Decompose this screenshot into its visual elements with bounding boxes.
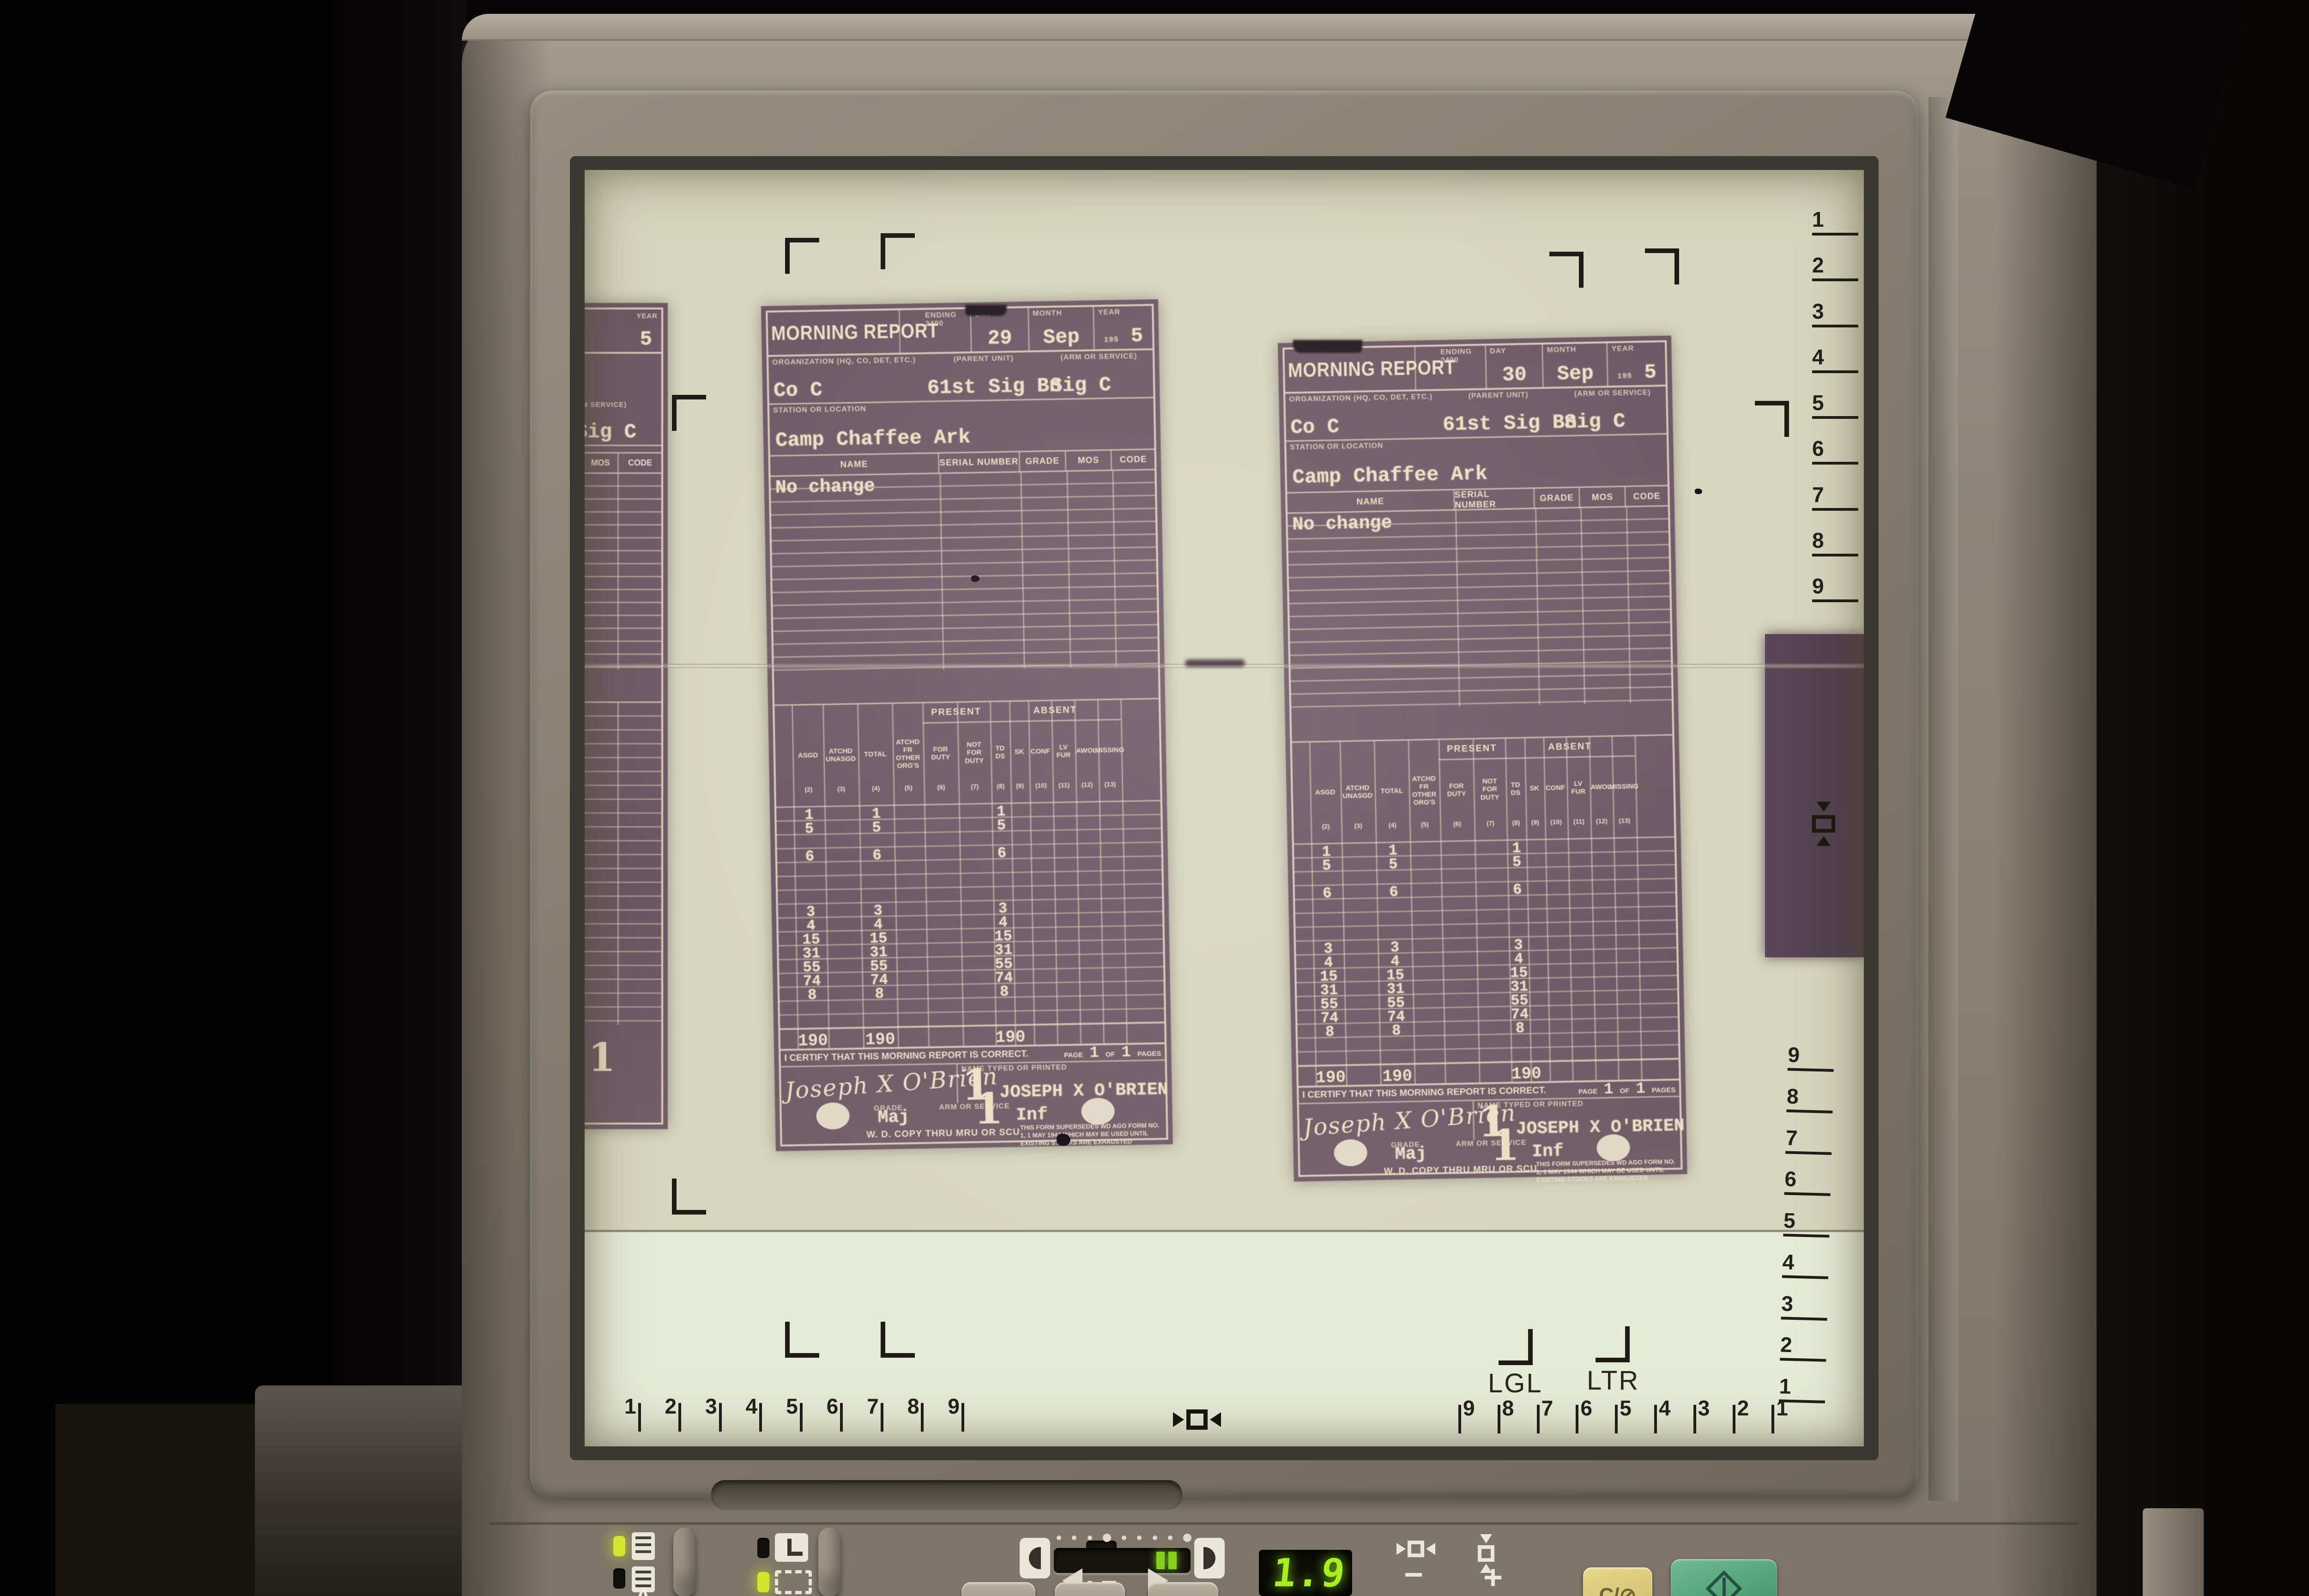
- adjacent-machine-part: [2143, 1508, 2204, 1596]
- film-carrier-slot[interactable]: [711, 1480, 1182, 1510]
- strength-col-number: (13): [1099, 780, 1122, 801]
- frame-selector-lever[interactable]: [818, 1528, 840, 1596]
- ruler-tick: 9: [1458, 1397, 1475, 1442]
- ruler-tick: 2: [665, 1396, 682, 1440]
- morning-report-document: MORNING REPORT ENDING 2400 DAY 30 MONTH …: [1278, 336, 1687, 1182]
- certification-section: I CERTIFY THAT THIS MORNING REPORT IS CO…: [780, 1042, 1166, 1144]
- corner-bracket-icon: [785, 1322, 819, 1358]
- legal-size-label: LGL: [1488, 1368, 1543, 1399]
- strength-col-number: (5): [1409, 820, 1440, 841]
- strength-col-label: LV FUR: [1052, 721, 1076, 781]
- strength-col-number: (11): [1052, 781, 1076, 802]
- mode-led: [613, 1568, 625, 1589]
- strength-col-number: (2): [793, 786, 824, 806]
- mode-selector-lever[interactable]: [673, 1528, 695, 1596]
- ruler-right-top: 123456789: [1812, 209, 1864, 602]
- strength-col-label: SK: [1524, 758, 1545, 819]
- ruler-bottom-left: 123456789: [624, 1396, 964, 1440]
- name-printed: JOSEPH X O'BRIEN: [1516, 1116, 1685, 1139]
- strength-value: 8: [995, 983, 1014, 1001]
- page-count: PAGE1 OF1 PAGES: [1578, 1079, 1675, 1099]
- strength-col-number: (6): [1440, 820, 1475, 840]
- strength-col-number: (6): [924, 783, 959, 804]
- ruler-tick: 6: [827, 1396, 843, 1440]
- strength-value: 5: [1311, 857, 1342, 875]
- vertical-center-mark-icon: [1807, 802, 1840, 846]
- ruler-tick: 9: [1812, 575, 1864, 602]
- mode-led-lit: [613, 1536, 625, 1556]
- minus-label: −: [1404, 1566, 1423, 1584]
- strength-value: 8: [1314, 1023, 1345, 1040]
- page-corner-icon: [775, 1533, 808, 1562]
- strength-col-number: (7): [958, 782, 991, 803]
- dark-room-left: [0, 0, 466, 1596]
- strength-col-label: MISSING: [1612, 756, 1636, 817]
- stamp-circle: [1081, 1098, 1115, 1125]
- strength-value: 5: [859, 819, 894, 836]
- present-band: PRESENT: [1439, 739, 1505, 761]
- strength-col-number: (12): [1076, 780, 1099, 801]
- strength-col-number: (13): [1613, 816, 1636, 837]
- strength-col-label: ATCHD FR OTHER ORG'S: [1408, 760, 1440, 821]
- grade-value: Maj: [1395, 1144, 1427, 1164]
- strength-col-label: ATCHD FR OTHER ORG'S: [892, 724, 924, 784]
- ruler-tick: 7: [867, 1396, 883, 1440]
- ruler-tick: 4: [1654, 1397, 1671, 1442]
- ending-cell: ENDING 2400: [921, 309, 972, 352]
- ruler-tick: 7: [1785, 1127, 1845, 1155]
- stamp-circle: [1596, 1134, 1630, 1161]
- month-cell: MONTH Sep: [1543, 343, 1608, 387]
- ruler-tick: 6: [1576, 1397, 1592, 1442]
- ruler-tick: 3: [1781, 1293, 1841, 1321]
- strength-col-label: FOR DUTY: [923, 723, 958, 784]
- film-dark-band: [1765, 634, 1864, 957]
- ruler-tick: 7: [1812, 484, 1864, 511]
- strength-col-label: NOT FOR DUTY: [957, 722, 991, 783]
- corner-bracket-icon: [1645, 248, 1679, 284]
- station-row: STATION OR LOCATION Camp Chaffee Ark: [1286, 435, 1668, 494]
- ruler-tick: 8: [1786, 1085, 1846, 1113]
- form-header: MORNING REPORT ENDING 2400 DAY 29 MONTH …: [768, 306, 1153, 357]
- frame-outline-icon: [775, 1570, 812, 1594]
- corner-bracket-icon: [1755, 401, 1789, 437]
- strength-value: 6: [992, 845, 1011, 862]
- machine-top-edge: [462, 14, 2097, 41]
- strength-value: 6: [1377, 883, 1411, 901]
- ruler-tick: 5: [786, 1396, 803, 1440]
- strength-value: 6: [1312, 885, 1343, 902]
- plus-label: +: [1483, 1568, 1503, 1587]
- strength-rows: 1115556663334441515153131315555557474748…: [1294, 836, 1679, 1065]
- strength-col-label: ATCHD UNASGD: [823, 725, 858, 785]
- strength-value: 8: [1511, 1020, 1530, 1037]
- strength-col-label: ASGD: [792, 725, 824, 786]
- ruler-tick: 3: [1693, 1397, 1710, 1442]
- strength-col-label: NOT FOR DUTY: [1473, 759, 1507, 820]
- grade-value: Maj: [877, 1107, 909, 1128]
- present-band: PRESENT: [922, 702, 990, 724]
- strength-value: 5: [794, 820, 825, 838]
- dark-room-right: [2094, 0, 2309, 1596]
- ruler-right-bottom: 987654321: [1779, 1044, 1847, 1403]
- ruler-tick: 1: [1812, 209, 1864, 236]
- strength-value: 8: [797, 986, 828, 1004]
- strength-col-number: (3): [824, 785, 859, 805]
- corner-bracket-icon: [785, 238, 819, 274]
- strength-col-label: TD DS: [1505, 759, 1526, 819]
- clear-stop-button[interactable]: C/⊘: [1583, 1567, 1652, 1596]
- stamp-circle: [816, 1102, 850, 1130]
- station-row: STATION OR LOCATION Camp Chaffee Ark: [769, 398, 1154, 457]
- ruler-tick: 4: [746, 1396, 762, 1440]
- strength-col-number: (11): [1567, 817, 1590, 838]
- ruler-tick: 6: [1784, 1168, 1844, 1197]
- start-diamond-icon: [1705, 1570, 1742, 1596]
- form-title: MORNING REPORT: [768, 310, 901, 355]
- strength-col-label: TD DS: [990, 722, 1010, 783]
- arm-value: Inf: [1532, 1141, 1564, 1161]
- ruler-tick: 8: [1498, 1397, 1514, 1442]
- organization-row: ORGANIZATION (HQ, CO, DET, ETC.)Co C (PA…: [1285, 387, 1667, 442]
- strength-section: PRESENT ABSENT 1115556663334441515153131…: [774, 698, 1165, 1049]
- corner-bracket-icon: [1596, 1326, 1630, 1362]
- frame-led: [757, 1538, 769, 1558]
- corner-bracket-icon: [672, 1179, 706, 1215]
- frame-led-lit: [757, 1572, 769, 1592]
- corner-bracket-icon: [881, 1322, 915, 1358]
- strength-col-number: (8): [991, 782, 1010, 803]
- ruler-tick: 8: [907, 1396, 924, 1440]
- strength-value: 8: [1379, 1022, 1414, 1040]
- page-count: PAGE1 OF1 PAGES: [1064, 1043, 1161, 1063]
- day-cell: DAY 30: [1486, 345, 1544, 388]
- strength-total-value: 190: [1511, 1064, 1531, 1084]
- ruler-tick: 5: [1812, 392, 1864, 419]
- strength-col-number: (8): [1506, 819, 1526, 840]
- ruler-tick: 3: [705, 1396, 722, 1440]
- certify-text: I CERTIFY THAT THIS MORNING REPORT IS CO…: [784, 1049, 1028, 1064]
- ruler-tick: 2: [1780, 1334, 1839, 1362]
- strength-total-value: 190: [863, 1030, 898, 1049]
- strength-value: 6: [794, 848, 825, 865]
- roster-entry: No change: [775, 476, 875, 499]
- roll-film-panel: Roll/F: [255, 1385, 490, 1596]
- strength-value: 6: [1508, 881, 1527, 899]
- reduce-center-icon: [1396, 1541, 1435, 1557]
- organization-row: ORGANIZATION (HQ, CO, DET, ETC.)Co C (PA…: [768, 350, 1154, 405]
- letter-size-label: LTR: [1587, 1365, 1639, 1396]
- strength-value: 5: [1376, 856, 1411, 873]
- microfilm-reader-photo: Roll/F YEAR 5 M SERVICE) Sig C MOS: [0, 0, 2309, 1596]
- year-cell: YEAR 195 5: [1608, 342, 1666, 386]
- corner-bracket-icon: [881, 233, 915, 269]
- start-print-button[interactable]: [1671, 1559, 1777, 1596]
- strength-value: 8: [862, 985, 897, 1003]
- certify-text: I CERTIFY THAT THIS MORNING REPORT IS CO…: [1302, 1085, 1547, 1100]
- ruler-tick: 7: [1537, 1397, 1553, 1442]
- strength-value: 5: [1507, 853, 1527, 871]
- strength-col-number: (12): [1590, 817, 1614, 838]
- strength-col-number: (4): [858, 784, 894, 805]
- ruler-tick: 9: [1788, 1044, 1847, 1072]
- ending-cell: ENDING 2400: [1437, 345, 1487, 389]
- strength-col-label: CONF: [1543, 758, 1567, 818]
- form-title: MORNING REPORT: [1284, 347, 1416, 392]
- strength-col-number: (10): [1545, 818, 1568, 839]
- corner-bracket-icon: [1499, 1329, 1533, 1365]
- strength-col-label: ASGD: [1310, 762, 1341, 823]
- roster-body: No change: [770, 470, 1158, 672]
- strength-col-label: SK: [1009, 722, 1029, 782]
- corner-bracket-icon: [672, 395, 706, 431]
- auto-mode-label: A: [635, 1583, 651, 1596]
- ruler-tick: 2: [1812, 254, 1864, 281]
- signature-cell: Joseph X O'Brien: [781, 1064, 958, 1106]
- certification-section: I CERTIFY THAT THIS MORNING REPORT IS CO…: [1299, 1079, 1681, 1182]
- exposure-scale-dots: [1057, 1532, 1191, 1543]
- strength-total-value: 190: [798, 1031, 828, 1051]
- ruler-tick: 1: [1771, 1397, 1788, 1442]
- strength-col-label: MISSING: [1098, 720, 1122, 781]
- ruler-tick: 4: [1782, 1251, 1842, 1279]
- strength-rows: 1115556663334441515153131315555557474748…: [776, 800, 1164, 1028]
- strength-total-value: 190: [1380, 1067, 1414, 1086]
- strength-col-label: LV FUR: [1566, 757, 1590, 818]
- strength-col-number: (5): [893, 784, 924, 804]
- month-cell: MONTH Sep: [1029, 307, 1095, 350]
- strength-col-label: ATCHD UNASGD: [1340, 762, 1375, 822]
- document-mode-icon: [632, 1532, 655, 1560]
- side-table: [55, 1404, 263, 1596]
- ruler-tick: 3: [1812, 301, 1864, 327]
- strength-total-value: 190: [1315, 1068, 1346, 1087]
- ruler-tick: 8: [1812, 530, 1864, 556]
- ruler-tick: 5: [1615, 1397, 1632, 1442]
- ruler-tick: 2: [1733, 1397, 1749, 1442]
- signature-cell: Joseph X O'Brien: [1299, 1101, 1475, 1143]
- horizontal-center-mark-icon: [1173, 1409, 1221, 1430]
- strength-col-label: TOTAL: [858, 724, 893, 785]
- morning-report-document-partial: YEAR 5 M SERVICE) Sig C MOS CODE 1: [585, 303, 668, 1129]
- prev-button[interactable]: [1055, 1582, 1125, 1596]
- ruler-tick: 9: [948, 1396, 964, 1440]
- strength-col-number: (9): [1525, 818, 1545, 839]
- zoom-ratio-display: 1.9: [1259, 1550, 1352, 1596]
- ae-button[interactable]: [961, 1582, 1035, 1596]
- strength-col-label: CONF: [1028, 721, 1052, 782]
- roster-body: No change: [1287, 507, 1672, 710]
- strength-section: PRESENT ABSENT 1115556663334441515153131…: [1292, 734, 1679, 1086]
- projection-screen: YEAR 5 M SERVICE) Sig C MOS CODE 1: [585, 170, 1864, 1446]
- strength-col-label: FOR DUTY: [1439, 760, 1475, 820]
- stamp-circle: [1334, 1139, 1367, 1167]
- strength-col-label: TOTAL: [1374, 761, 1410, 822]
- strength-value: 5: [991, 817, 1011, 834]
- roster-entry: No change: [1292, 513, 1392, 535]
- contrast-high-icon: [1194, 1538, 1225, 1578]
- arm-value: Inf: [1016, 1105, 1048, 1125]
- strength-col-number: (7): [1474, 819, 1507, 840]
- ruler-bottom-right: 987654321: [1458, 1397, 1788, 1442]
- ruler-tick: 1: [624, 1396, 641, 1440]
- corner-bracket-icon: [1549, 252, 1584, 288]
- morning-report-document: MORNING REPORT ENDING 2400 DAY 29 MONTH …: [761, 299, 1173, 1151]
- strength-total-value: 190: [995, 1028, 1015, 1047]
- strength-value: 6: [859, 846, 895, 864]
- year-cell: YEAR 195 5: [1094, 306, 1152, 349]
- next-button[interactable]: [1148, 1582, 1218, 1596]
- name-printed: JOSEPH X O'BRIEN: [999, 1080, 1168, 1102]
- ruler-tick: 6: [1812, 438, 1864, 465]
- ruler-tick: 5: [1783, 1209, 1843, 1238]
- strength-col-number: (3): [1341, 822, 1376, 842]
- strength-col-number: (4): [1375, 821, 1410, 842]
- strength-col-number: (2): [1311, 822, 1342, 843]
- strength-col-number: (9): [1010, 782, 1030, 803]
- strength-col-number: (10): [1029, 781, 1053, 802]
- ruler-tick: 4: [1812, 346, 1864, 373]
- contrast-low-icon: [1020, 1538, 1050, 1578]
